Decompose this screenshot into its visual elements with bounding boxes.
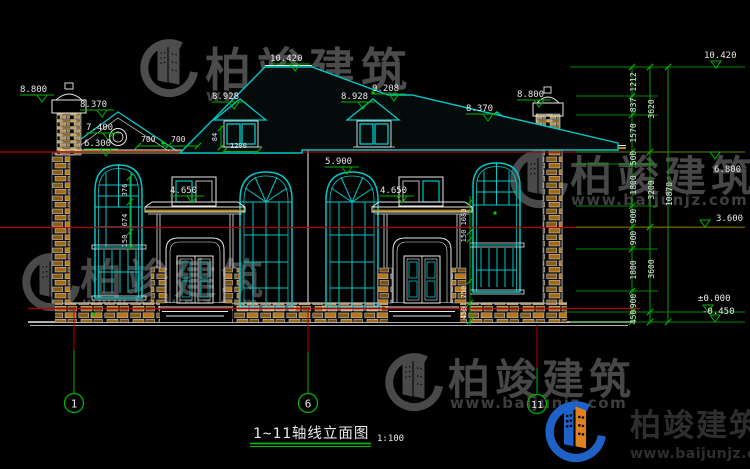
porch-pier: [151, 268, 165, 303]
dim-label: 450: [460, 307, 468, 320]
watermark-bottom: 柏竣建筑 www.baijunjz.com: [389, 355, 636, 412]
dim-label: 150: [460, 230, 468, 243]
level-label: 9.208: [372, 84, 399, 94]
level-label: 8.928: [212, 92, 239, 102]
watermark-logo-icon: [144, 43, 194, 93]
dim-label: 376: [121, 184, 129, 197]
dim-label: 84: [211, 133, 219, 141]
level-label: 8.928: [341, 92, 368, 102]
axis-number: 11: [531, 400, 543, 411]
stone-pillar-right: [543, 147, 562, 303]
dim-label: 750: [460, 286, 468, 299]
axis-number: 1: [71, 398, 78, 411]
level-label: 8.800: [517, 90, 544, 100]
level-label: 10.420: [270, 54, 303, 64]
chain-dim-total: 10870: [665, 182, 674, 206]
dim-label: 1080: [460, 209, 468, 226]
chain-dim: 900: [629, 231, 638, 246]
window-tall-right: [470, 163, 524, 294]
chain-dim: 500: [629, 151, 638, 166]
chain-dim: 1570: [629, 123, 638, 142]
drawing-scale: 1:100: [377, 434, 404, 444]
margin-level: ±0.000: [698, 294, 731, 304]
window-arched-right: [323, 172, 381, 310]
dim-label: 150: [121, 235, 129, 248]
drawing-title: 1~11轴线立面图: [253, 425, 369, 442]
chain-dim: 900: [629, 209, 638, 224]
level-label: 8.370: [80, 100, 107, 110]
axis-bubble-6: 6: [299, 394, 318, 413]
dim-label: 700: [171, 135, 186, 144]
entrance-door-2: [404, 256, 440, 303]
level-label: 8.800: [20, 85, 47, 95]
chimney-left: [52, 83, 86, 155]
chain-dim: 3200: [647, 180, 656, 199]
level-label: 6.300: [84, 139, 111, 149]
stone-base-band: [55, 303, 567, 322]
dim-label: 674: [121, 214, 129, 227]
axis-bubble-1: 1: [65, 394, 84, 413]
axis-number: 6: [305, 398, 312, 411]
dim-label: 1200: [230, 142, 247, 150]
chain-dim: 450: [629, 310, 638, 325]
porch-pier: [225, 268, 239, 303]
porch-pier: [378, 268, 392, 303]
elevation-drawing-svg: 柏竣建筑 www.baijunjz.com 柏竣建筑 www.baijunjz.…: [0, 0, 750, 469]
level-label: 8.370: [466, 104, 493, 114]
chain-dim: 1800: [629, 260, 638, 279]
level-label: 4.650: [380, 186, 407, 196]
margin-level: 6.800: [714, 165, 741, 175]
brand-logo-footer: 柏竣建筑 www.baijunjz.com: [550, 405, 750, 462]
chain-dim: 1800: [629, 175, 638, 194]
chain-dim: 900: [629, 294, 638, 309]
title-block: 1~11轴线立面图 1:100: [250, 425, 404, 447]
level-label: 5.900: [325, 157, 352, 167]
brand-name: 柏竣建筑: [630, 408, 750, 444]
chain-dim: 837: [629, 98, 638, 113]
level-label: 4.650: [170, 186, 197, 196]
dim-label: 700: [141, 135, 156, 144]
brand-url: www.baijunjz.com: [630, 446, 750, 462]
entrance-porch-1: [145, 202, 245, 322]
watermark-logo-icon: [389, 357, 439, 407]
cad-canvas: 柏竣建筑 www.baijunjz.com 柏竣建筑 www.baijunjz.…: [0, 0, 750, 469]
brand-logo-icon: [550, 405, 602, 458]
margin-level: 3.600: [716, 214, 743, 224]
margin-level: 10.420: [704, 51, 737, 61]
chain-dim: 1212: [629, 72, 638, 91]
chain-dim: 3600: [647, 259, 656, 278]
chain-dim: 3620: [647, 99, 656, 118]
level-label: 7.400: [86, 123, 113, 133]
